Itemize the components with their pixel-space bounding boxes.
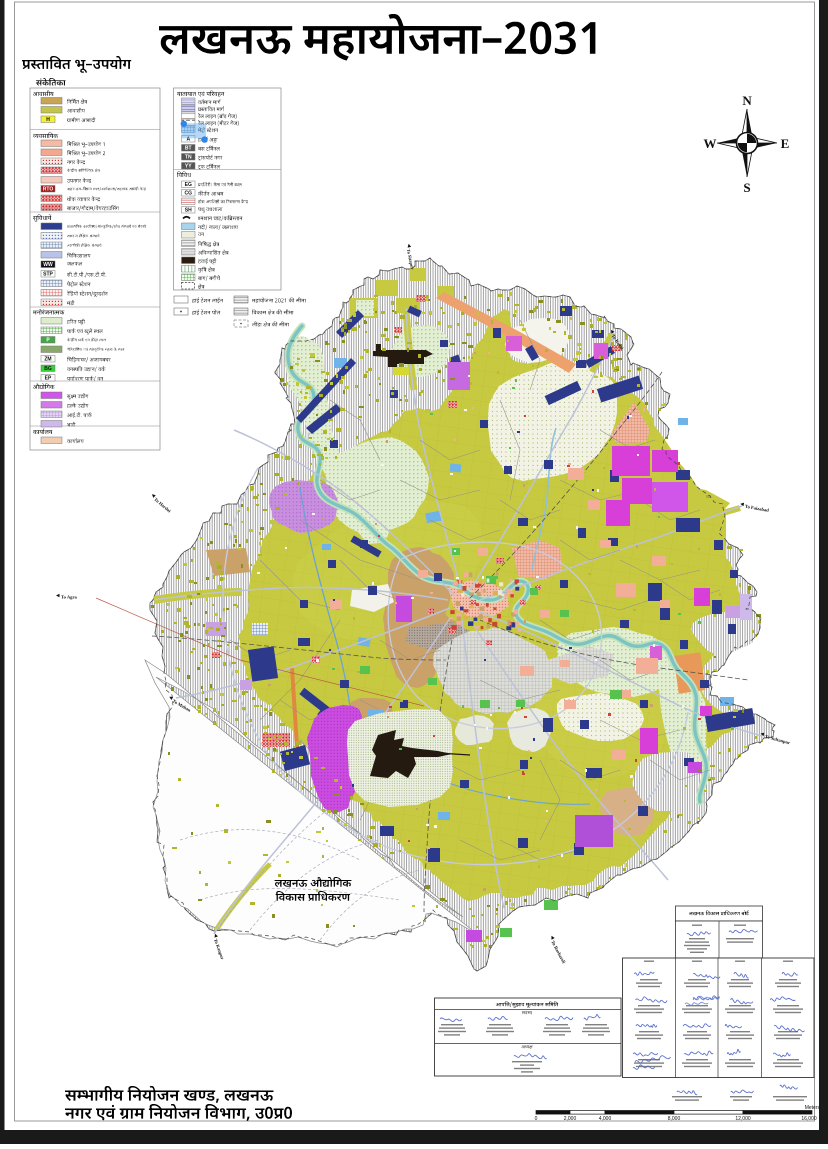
svg-text:BT: BT [185, 146, 192, 152]
svg-text:SH: SH [185, 208, 192, 214]
svg-text:TN: TN [185, 155, 192, 161]
svg-text:YY: YY [185, 164, 192, 170]
svg-text:EP: EP [45, 376, 52, 382]
svg-text:ZM: ZM [44, 357, 51, 363]
svg-text:N: N [742, 93, 752, 108]
svg-text:S: S [743, 180, 750, 195]
svg-text:CG: CG [185, 191, 193, 197]
svg-text:2,000: 2,000 [564, 1116, 577, 1122]
svg-text:RTO: RTO [43, 187, 54, 193]
svg-text:12,000: 12,000 [735, 1116, 751, 1122]
svg-text:0: 0 [535, 1116, 538, 1122]
svg-text:To Agra: To Agra [61, 595, 77, 600]
svg-text:STP: STP [43, 272, 53, 278]
svg-text:16,000: 16,000 [801, 1116, 817, 1122]
svg-text:8,000: 8,000 [668, 1116, 681, 1122]
svg-text:H: H [46, 117, 50, 123]
svg-text:BG: BG [44, 366, 52, 372]
svg-text:EG: EG [185, 182, 192, 188]
svg-text:4,000: 4,000 [599, 1116, 612, 1122]
svg-text:E: E [781, 136, 790, 151]
svg-text:W: W [704, 136, 717, 151]
svg-text:WW: WW [43, 262, 53, 268]
svg-text:Meters: Meters [805, 1105, 821, 1111]
